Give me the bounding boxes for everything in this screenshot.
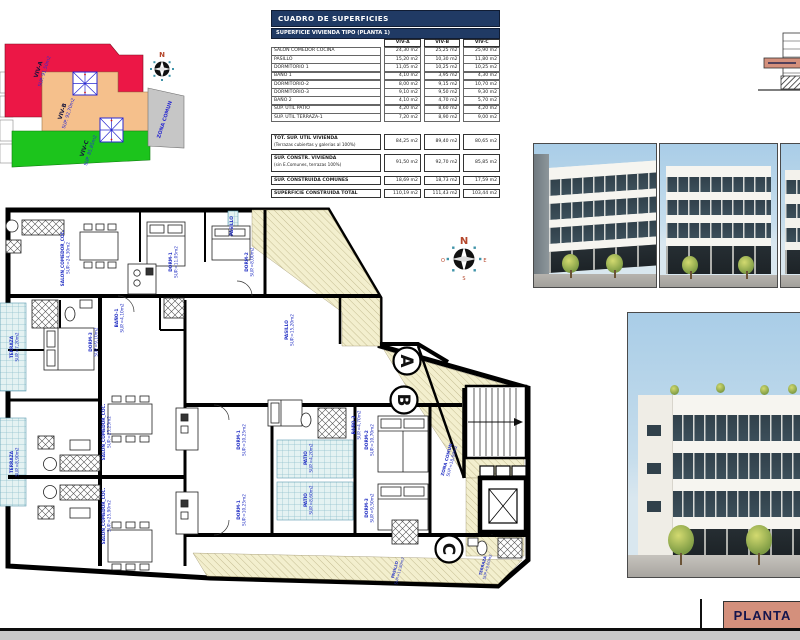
compass-n: N: [460, 236, 468, 247]
room-label: BAÑO-2: [350, 416, 357, 435]
table-title: CUADRO DE SUPERFICIES: [271, 10, 500, 27]
table-cell: 84,25 m2: [384, 134, 421, 150]
table-cell: 89,40 m2: [424, 134, 461, 150]
room-sup: SUP.=8,90m2: [14, 447, 20, 477]
room-sup: SUP.=11,05m2: [173, 246, 179, 278]
room-label: PASILLO: [284, 320, 290, 340]
room-sup: SUP.=4,10m2: [119, 303, 125, 333]
room-sup: SUP.=9,10m2: [93, 327, 99, 357]
room-label: DORM-1: [236, 430, 242, 450]
room-sup: SUP.=9,50m2: [369, 493, 375, 523]
table-cell: 110,19 m2: [384, 189, 421, 198]
room-sup: SUP.=10,25m2: [241, 494, 247, 526]
bed: [378, 416, 428, 472]
title-block-divider: [700, 599, 702, 628]
table-row: SUP. UTIL TERRAZA-17,20 m28,90 m29,00 m2: [271, 113, 500, 122]
bed: [44, 328, 94, 370]
table-cell: 103,44 m2: [463, 189, 500, 198]
elevator: [480, 466, 526, 532]
room-label: SALON_COMEDOR_COC.: [101, 487, 107, 544]
room-label: TERRAZA: [9, 335, 15, 358]
room-label: DORM-1: [236, 500, 242, 520]
room-sup: SUP.=8,00m2: [249, 247, 255, 277]
summary-row: SUPERFICIE CONSTRUIDA TOTAL 110,19 m2 11…: [271, 189, 500, 198]
room-label: DORM-3: [88, 332, 94, 352]
room-sup: SUP.=7,20m2: [14, 332, 20, 362]
room-label: DORM-2: [364, 430, 370, 450]
stairs: [466, 386, 526, 458]
plan-compass-icon: N O E S: [441, 236, 487, 282]
sheet-title-planta: PLANTA: [723, 601, 800, 629]
room-sup: SUP.=15,20m2: [289, 314, 295, 346]
section-sketch: [758, 33, 800, 90]
building-render-photo: [659, 143, 778, 288]
room-sup: SUP.=24,30m2: [65, 242, 71, 274]
room-sup: SUP.=8,60m2: [308, 485, 314, 515]
summary-label: SUP. CONSTRUIDA COMUNES: [274, 178, 348, 183]
room-sup: SUP.=10,25m2: [241, 424, 247, 456]
room-label: PATIO: [303, 493, 309, 507]
table-cell: 8,90 m2: [424, 113, 461, 122]
summary-sublabel: (Terrazas cubiertas y galerias al 100%): [274, 142, 378, 147]
summary-row: SUP. CONSTR. VIVIENDA(sin E.Comunes, ter…: [271, 154, 500, 172]
surface-table: CUADRO DE SUPERFICIES SUPERFICIE VIVIEND…: [271, 10, 500, 198]
table-cell: 18,69 m2: [384, 176, 421, 185]
room-sup: SUP.=4,20m2: [308, 443, 314, 473]
building-render-photo-large: [627, 312, 800, 578]
building-render-photo: [780, 143, 800, 288]
table-cell: 92,70 m2: [424, 154, 461, 172]
table-cell: 85,85 m2: [463, 154, 500, 172]
table-cell: 111,43 m2: [424, 189, 461, 198]
room-label: DORM-2: [244, 252, 250, 272]
compass-s: S: [462, 276, 465, 282]
plan-sheet: VIV-A SUP. 91,50m2 VIV-B SUP. 92,70m2 VI…: [0, 0, 800, 640]
room-sup: SUP.=4,70m2: [356, 410, 362, 440]
row-label: SUP. UTIL TERRAZA-1: [271, 113, 381, 122]
room-label: DORM-3: [364, 498, 370, 518]
room-label: SALON_COMEDOR_COC.: [60, 229, 66, 286]
summary-sublabel: (sin E.Comunes, terrazas 100%): [274, 162, 378, 167]
summary-row: TOT. SUP. UTIL VIVIENDA(Terrazas cubiert…: [271, 134, 500, 150]
compass-e: E: [483, 258, 486, 264]
compass-o: O: [441, 258, 445, 264]
section-mark-a: A: [396, 354, 416, 368]
table-subtitle: SUPERFICIE VIVIENDA TIPO (PLANTA 1): [271, 28, 500, 39]
table-cell: 18,73 m2: [424, 176, 461, 185]
room-sup: SUP.=25,25m2: [106, 416, 112, 448]
table-cell: 80,65 m2: [463, 134, 500, 150]
table-cell: 17,59 m2: [463, 176, 500, 185]
table-cell: 7,20 m2: [384, 113, 421, 122]
summary-row: SUP. CONSTRUIDA COMUNES 18,69 m2 18,73 m…: [271, 176, 500, 185]
room-label: BAÑO-1: [113, 309, 120, 328]
section-mark-c: C: [438, 543, 458, 555]
table-cell: 9,00 m2: [463, 113, 500, 122]
building-render-photo: [533, 143, 657, 288]
summary-label: SUP. CONSTR. VIVIENDA: [274, 156, 336, 161]
site-compass-n: N: [159, 51, 165, 59]
room-sup: SUP.=25,90m2: [106, 500, 112, 532]
section-mark-b: B: [393, 394, 413, 407]
sheet-edge: [0, 631, 800, 640]
floor-plan: A B C N O E S TERRAZASUP.=7,20m2 TERRAZA…: [0, 210, 528, 586]
room-label: SALON_COMEDOR_COC.: [101, 403, 107, 460]
summary-label: SUPERFICIE CONSTRUIDA TOTAL: [274, 191, 358, 196]
room-label: PASILLO: [229, 216, 235, 236]
room-sup: SUP.=10,70m2: [369, 424, 375, 456]
site-compass-icon: N: [150, 51, 174, 81]
room-label: TERRAZA: [9, 450, 15, 473]
bed: [268, 400, 302, 426]
table-cell: 91,50 m2: [384, 154, 421, 172]
site-plan: VIV-A SUP. 91,50m2 VIV-B SUP. 92,70m2 VI…: [0, 44, 184, 167]
room-label: PATIO: [303, 451, 309, 465]
room-label: DORM-1: [168, 252, 174, 272]
summary-label: TOT. SUP. UTIL VIVIENDA: [274, 136, 338, 141]
